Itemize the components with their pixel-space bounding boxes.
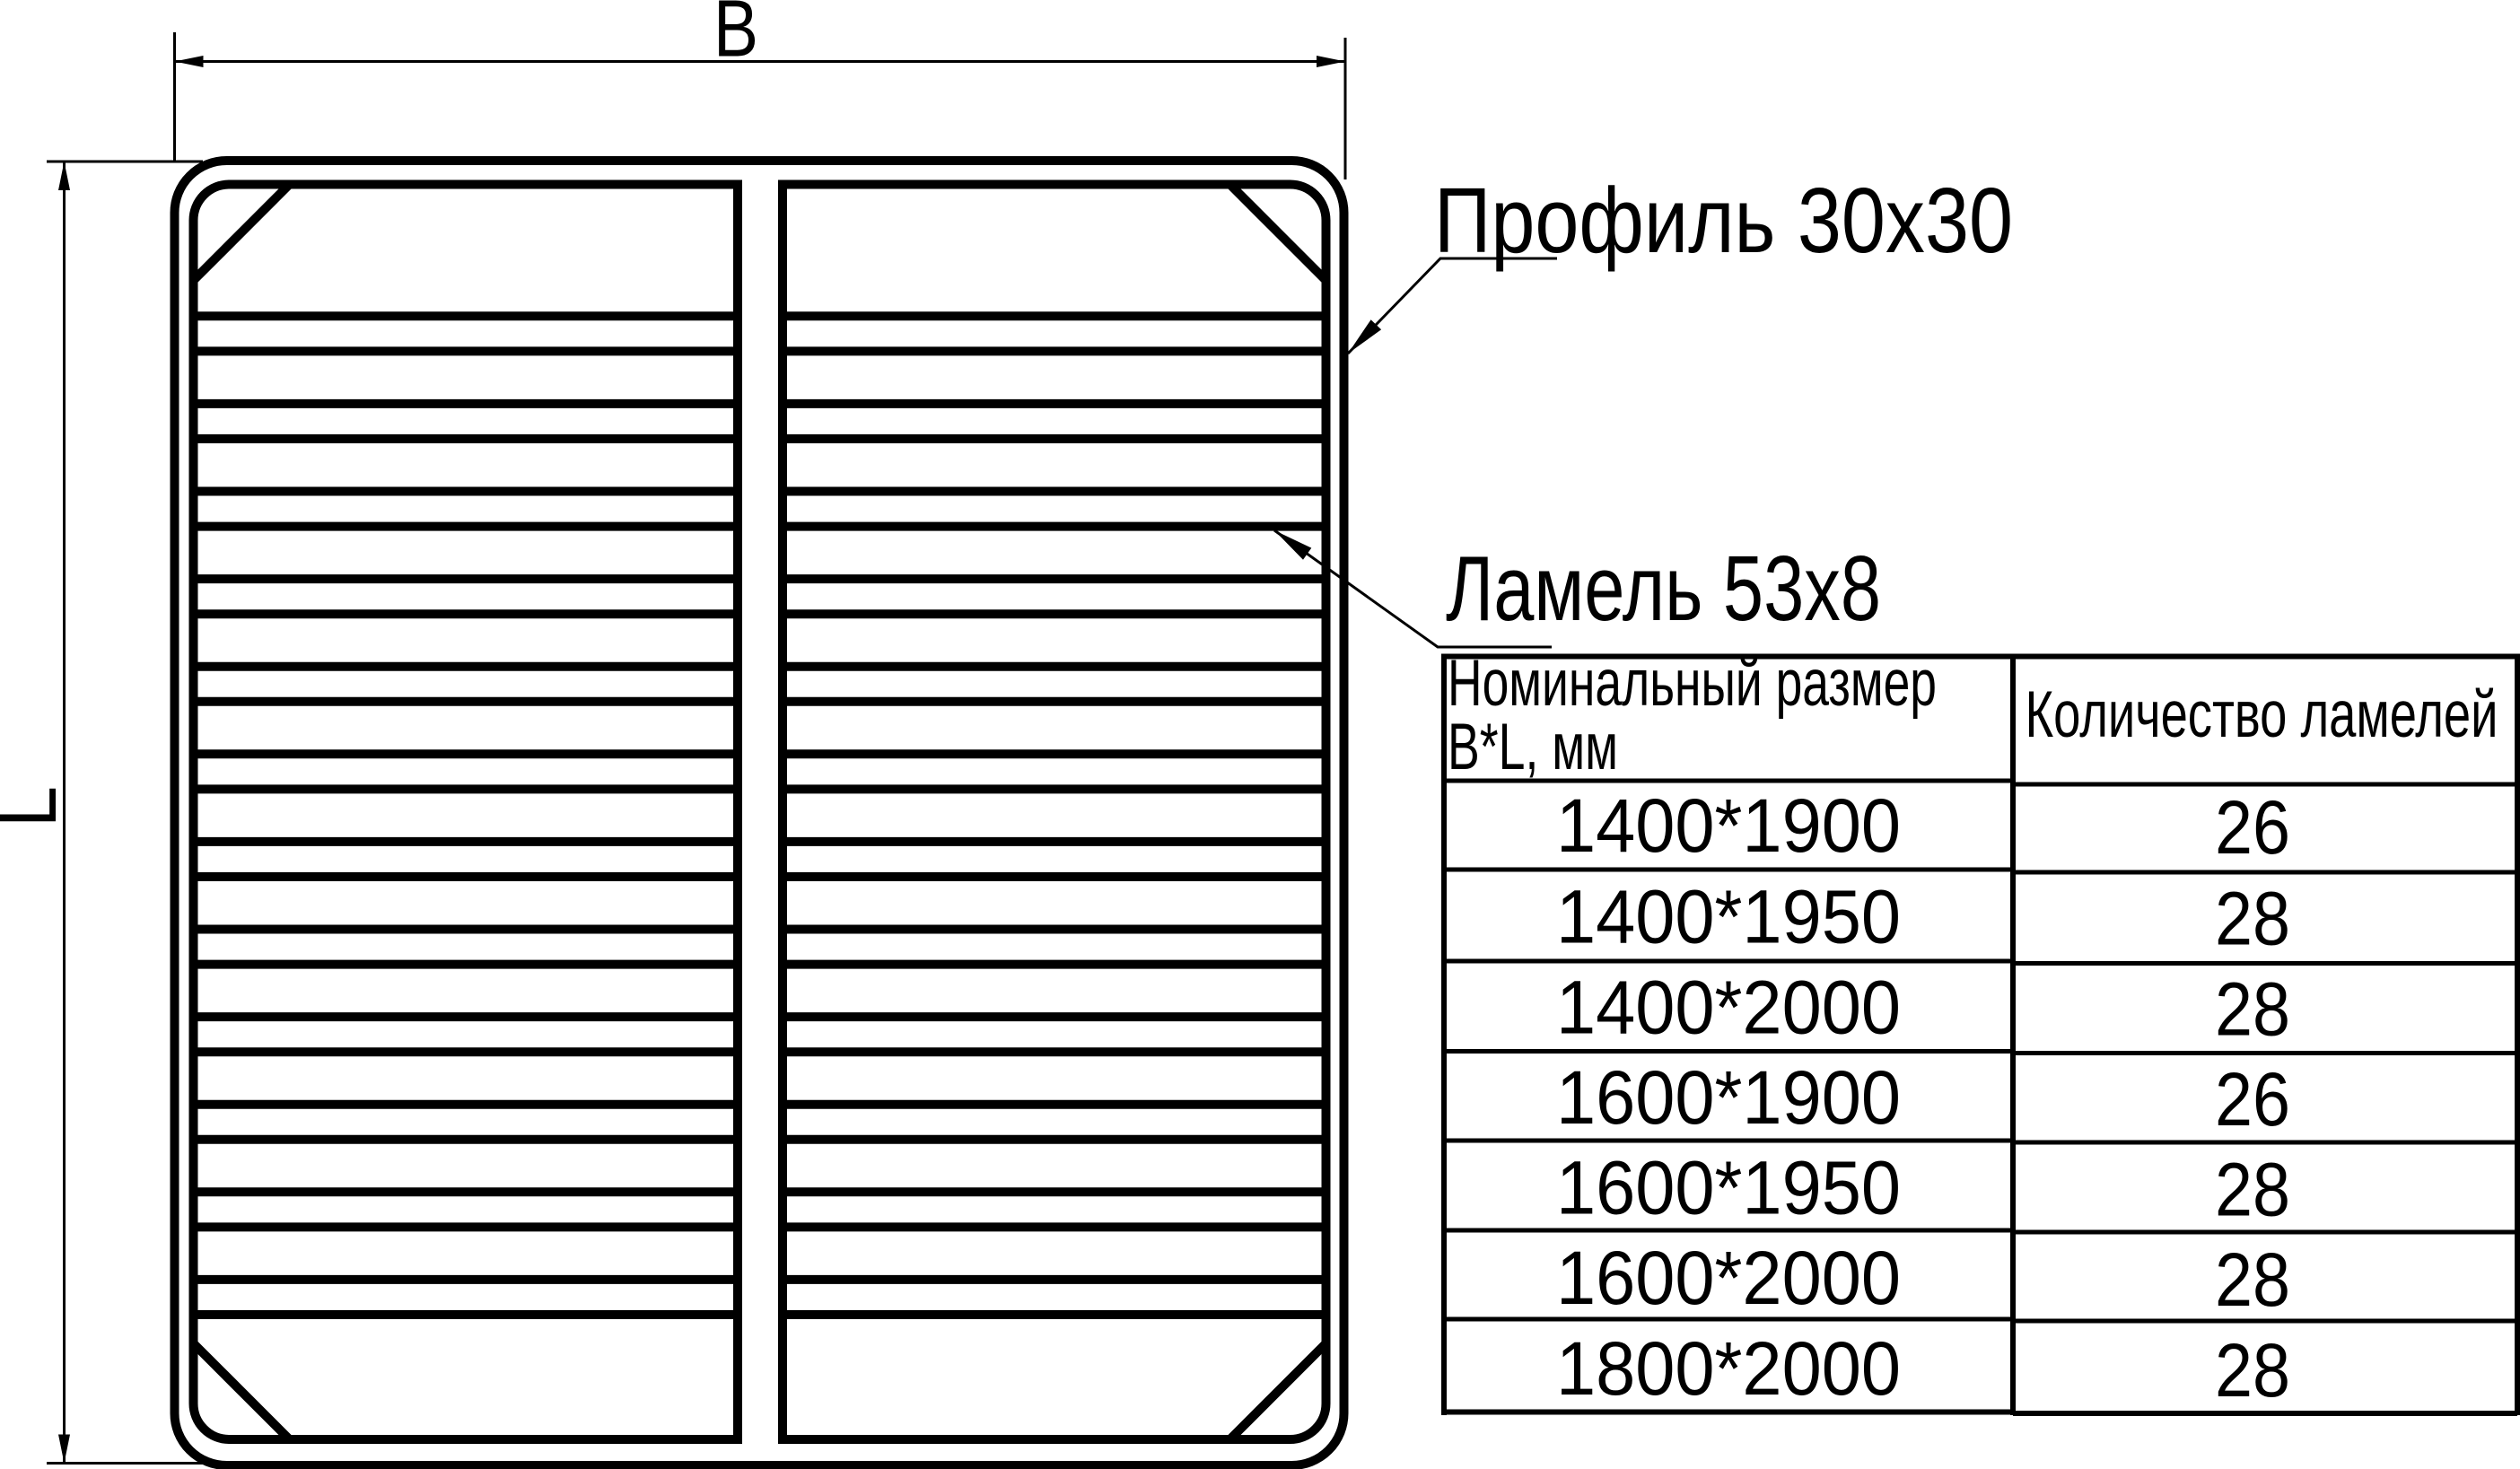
svg-text:1400*2000: 1400*2000: [1556, 966, 1901, 1050]
svg-text:26: 26: [2215, 1057, 2290, 1141]
svg-text:B*L, мм: B*L, мм: [1448, 711, 1618, 783]
svg-text:B: B: [713, 0, 758, 74]
svg-text:Номинальный размер: Номинальный размер: [1448, 647, 1937, 720]
svg-text:1600*2000: 1600*2000: [1556, 1236, 1901, 1320]
svg-text:Профиль 30х30: Профиль 30х30: [1434, 169, 2013, 272]
svg-text:Количество ламелей: Количество ламелей: [2026, 678, 2498, 751]
svg-text:1400*1950: 1400*1950: [1556, 875, 1901, 959]
svg-text:26: 26: [2215, 785, 2290, 870]
svg-text:1400*1900: 1400*1900: [1556, 783, 1901, 868]
svg-text:1600*1900: 1600*1900: [1556, 1055, 1901, 1140]
svg-text:28: 28: [2215, 1148, 2290, 1232]
svg-text:1800*2000: 1800*2000: [1556, 1326, 1901, 1411]
svg-text:28: 28: [2215, 967, 2290, 1052]
svg-text:28: 28: [2215, 1237, 2290, 1322]
svg-text:28: 28: [2215, 877, 2290, 961]
svg-text:Ламель 53х8: Ламель 53х8: [1446, 537, 1881, 640]
svg-text:L: L: [0, 786, 74, 827]
svg-text:1600*1950: 1600*1950: [1556, 1146, 1901, 1230]
svg-text:28: 28: [2215, 1328, 2290, 1412]
